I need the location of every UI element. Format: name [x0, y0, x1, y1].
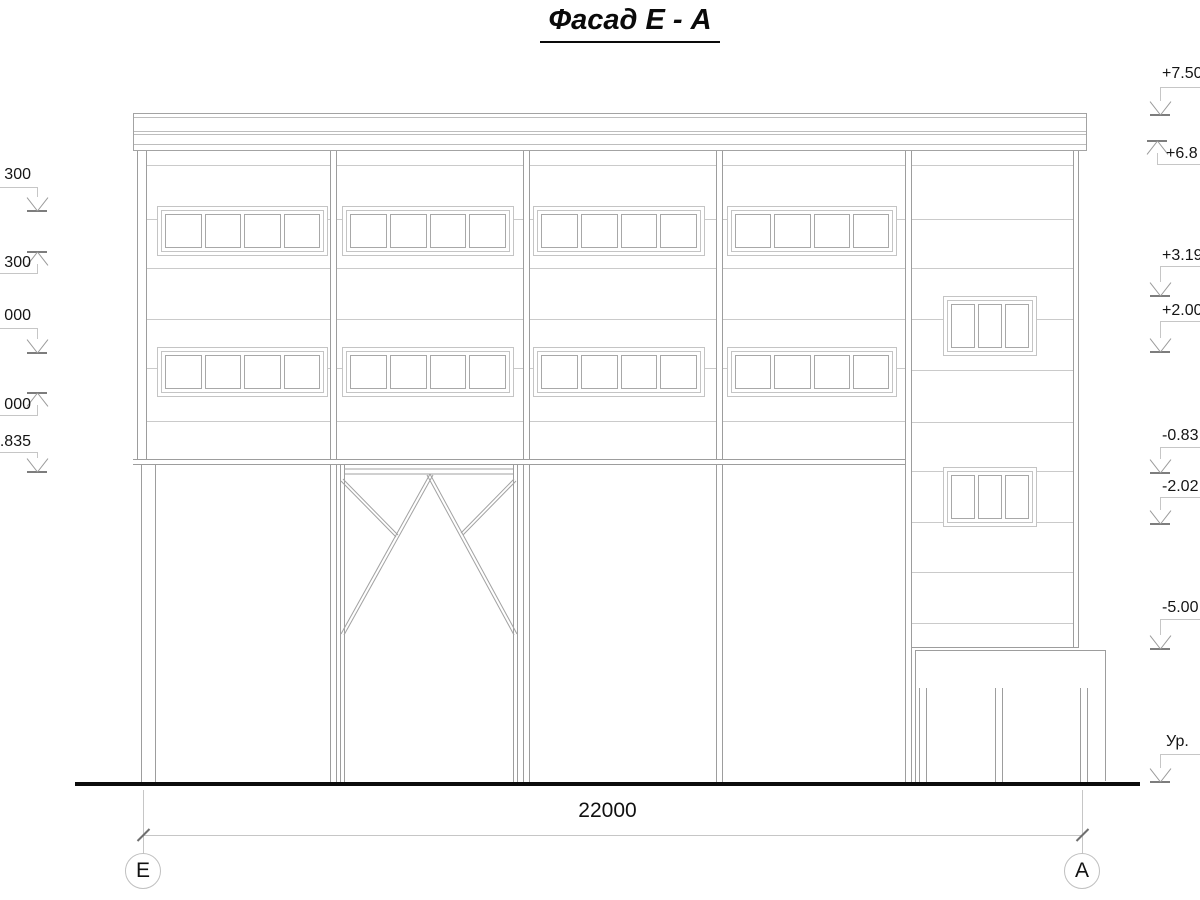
window-4pane [533, 206, 705, 256]
ground-line [75, 782, 1140, 786]
axis-label: А [1075, 859, 1089, 883]
elevation-arrow [27, 197, 47, 212]
foundation-right-edge [1105, 650, 1106, 781]
siding-line [146, 165, 1073, 166]
dimension-line [143, 835, 1082, 836]
elevation-label: -2.02 [1162, 478, 1198, 496]
foundation-pier [1080, 688, 1088, 782]
elevation-label: +6.8 [1166, 145, 1198, 163]
window-4pane [727, 347, 897, 397]
elevation-label: +2.00 [1162, 302, 1200, 320]
roof-parapet [133, 113, 1087, 151]
drawing-title: Фасад Е - А [540, 4, 719, 43]
elevation-arrow [1150, 459, 1170, 474]
elevation-arrow [27, 339, 47, 354]
siding-line [146, 319, 1073, 320]
dimension-value: 22000 [535, 799, 680, 823]
column [716, 151, 723, 782]
elevation-label: +3.19 [1162, 247, 1200, 265]
door-bracing [328, 460, 530, 650]
siding-line [912, 572, 1073, 573]
elevation-label: -5.00 [1162, 599, 1198, 617]
elevation-label: .835 [0, 433, 31, 451]
foundation-pier [995, 688, 1003, 782]
window-4pane [342, 347, 514, 397]
window-3pane [943, 467, 1037, 527]
foundation-left-edge [915, 650, 916, 782]
elevation-label: 000 [0, 396, 31, 414]
elevation-label: 300 [0, 254, 31, 272]
siding-line [146, 268, 1073, 269]
axis-bubble-E: Е [125, 853, 161, 889]
wall-right-edge [1073, 151, 1079, 648]
elevation-label: +7.50 [1162, 65, 1200, 83]
title-block: Фасад Е - А [400, 4, 860, 43]
window-4pane [157, 206, 328, 256]
elevation-arrow [1150, 101, 1170, 116]
elevation-label: 000 [0, 307, 31, 325]
axis-label: Е [136, 859, 150, 883]
elevation-arrow [1150, 338, 1170, 353]
elevation-arrow [1150, 635, 1170, 650]
wall-left-edge [137, 151, 147, 463]
elevation-arrow [1150, 510, 1170, 525]
column [905, 151, 912, 782]
elevation-label: 300 [0, 166, 31, 184]
siding-line [912, 370, 1073, 371]
extension-line [143, 790, 144, 854]
axis-bubble-A: А [1064, 853, 1100, 889]
elevation-label: -0.83 [1162, 427, 1198, 445]
siding-line [912, 623, 1073, 624]
window-3pane [943, 296, 1037, 356]
siding-line [912, 422, 1073, 423]
wall-bottom-ledge [133, 459, 905, 465]
facade-drawing: Фасад Е - А [0, 0, 1200, 900]
annex-bottom-line [912, 647, 1078, 648]
window-4pane [157, 347, 328, 397]
window-4pane [533, 347, 705, 397]
foundation-pier [919, 688, 927, 782]
foundation-top-line [915, 650, 1105, 651]
elevation-label: Ур. [1166, 733, 1189, 751]
window-4pane [342, 206, 514, 256]
elevation-arrow [27, 458, 47, 473]
window-4pane [727, 206, 897, 256]
elevation-arrow [1150, 768, 1170, 783]
elevation-arrow [1150, 282, 1170, 297]
ground-pier [141, 463, 156, 782]
extension-line [1082, 790, 1083, 854]
